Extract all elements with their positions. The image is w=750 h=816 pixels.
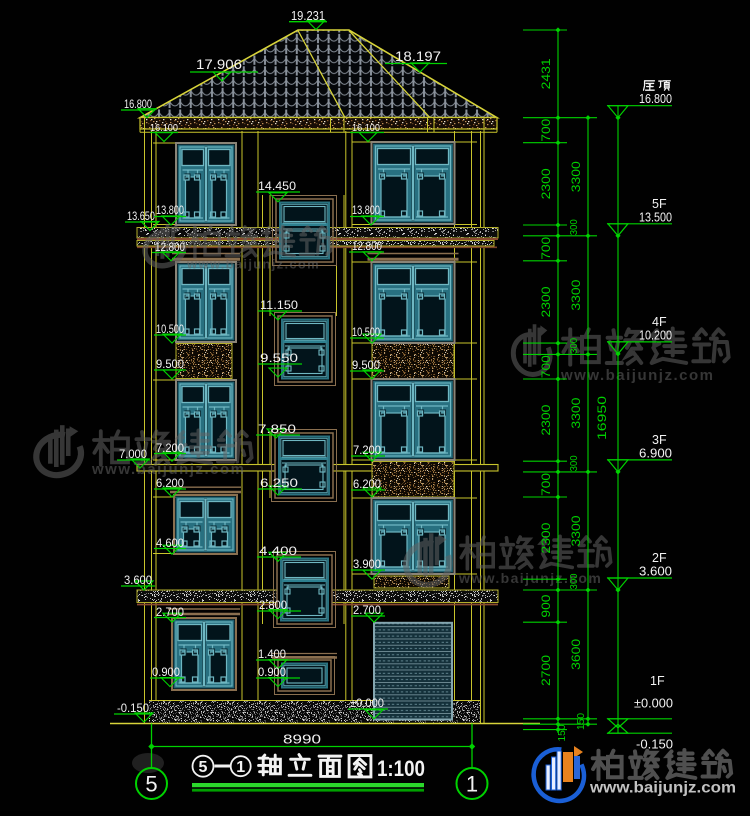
svg-text:-0.150: -0.150 [117, 703, 149, 715]
svg-text:16.100: 16.100 [352, 122, 380, 134]
svg-text:1: 1 [236, 759, 245, 776]
svg-text:13.800: 13.800 [352, 205, 380, 217]
svg-text:10.500: 10.500 [352, 327, 380, 339]
svg-text:5F: 5F [652, 197, 667, 211]
svg-text:3300: 3300 [571, 161, 583, 192]
svg-text:18.197: 18.197 [395, 48, 441, 64]
svg-text:8990: 8990 [283, 732, 321, 747]
svg-text:2F: 2F [652, 551, 667, 565]
svg-text:9.500: 9.500 [352, 360, 380, 372]
svg-text:11.150: 11.150 [260, 298, 298, 312]
svg-text:13.650: 13.650 [127, 211, 155, 223]
svg-text:7.850: 7.850 [258, 422, 297, 436]
svg-text:2431: 2431 [541, 58, 553, 89]
svg-text:2300: 2300 [541, 286, 553, 317]
svg-text:2.800: 2.800 [259, 600, 287, 612]
svg-text:4F: 4F [652, 315, 667, 329]
svg-text:300: 300 [568, 455, 580, 471]
svg-text:2300: 2300 [541, 405, 553, 436]
svg-text:10.200: 10.200 [639, 328, 672, 342]
svg-text:1: 1 [466, 772, 478, 797]
svg-text:2.700: 2.700 [156, 607, 184, 619]
svg-text:300: 300 [568, 338, 580, 354]
svg-text:150: 150 [575, 713, 587, 730]
svg-text:www.baijunjz.com: www.baijunjz.com [458, 570, 602, 586]
svg-text:2300: 2300 [541, 523, 553, 554]
svg-text:9.550: 9.550 [260, 351, 299, 365]
svg-text:5: 5 [145, 772, 157, 797]
svg-text:9.500: 9.500 [156, 359, 184, 371]
svg-text:17.906: 17.906 [196, 56, 242, 72]
svg-text:13.800: 13.800 [156, 205, 184, 217]
svg-text:700: 700 [541, 355, 553, 378]
svg-text:3F: 3F [652, 433, 667, 447]
svg-text:6.200: 6.200 [156, 478, 184, 490]
svg-text:13.500: 13.500 [639, 210, 672, 224]
svg-text:www.baijunjz.com: www.baijunjz.com [186, 256, 320, 271]
svg-text:7.000: 7.000 [119, 449, 147, 461]
svg-text:19.231: 19.231 [291, 9, 325, 23]
svg-text:3300: 3300 [571, 515, 583, 546]
svg-text:12.800: 12.800 [352, 241, 382, 253]
svg-text:10.500: 10.500 [156, 324, 184, 336]
svg-text:6.200: 6.200 [353, 479, 381, 491]
svg-text:4.600: 4.600 [156, 538, 184, 550]
svg-text:3300: 3300 [571, 280, 583, 311]
svg-text:7.200: 7.200 [353, 445, 381, 457]
svg-text:150: 150 [556, 724, 568, 741]
svg-text:6.250: 6.250 [260, 476, 299, 490]
svg-text:6.900: 6.900 [639, 446, 672, 460]
svg-text:3600: 3600 [571, 639, 583, 670]
svg-text:3300: 3300 [571, 398, 583, 429]
svg-text:900: 900 [541, 595, 553, 618]
svg-text:1:100: 1:100 [377, 756, 425, 781]
svg-text:16.800: 16.800 [639, 92, 672, 106]
svg-text:14.450: 14.450 [258, 179, 296, 193]
svg-text:www.baijunjz.com: www.baijunjz.com [91, 461, 245, 478]
svg-text:3.900: 3.900 [353, 559, 381, 571]
svg-text:www.baijunjz.com: www.baijunjz.com [589, 780, 736, 797]
svg-text:700: 700 [541, 237, 553, 260]
svg-text:2700: 2700 [541, 655, 553, 686]
svg-text:300: 300 [568, 219, 580, 235]
svg-text:±0.000: ±0.000 [350, 698, 384, 710]
svg-text:700: 700 [541, 473, 553, 496]
svg-text:-0.150: -0.150 [636, 738, 673, 752]
svg-text:5: 5 [199, 759, 208, 776]
svg-text:16.100: 16.100 [150, 122, 178, 134]
svg-text:2.700: 2.700 [353, 605, 381, 617]
svg-text:700: 700 [541, 119, 553, 142]
svg-text:3.600: 3.600 [639, 565, 672, 579]
svg-text:16.800: 16.800 [124, 99, 152, 111]
svg-text:1F: 1F [650, 674, 665, 688]
svg-text:16950: 16950 [595, 396, 609, 440]
svg-text:300: 300 [568, 573, 580, 589]
svg-text:www.baijunjz.com: www.baijunjz.com [560, 367, 714, 384]
svg-text:0.900: 0.900 [152, 667, 180, 679]
svg-text:2300: 2300 [541, 168, 553, 199]
svg-text:0.900: 0.900 [258, 667, 286, 679]
svg-text:±0.000: ±0.000 [634, 697, 673, 711]
svg-text:3.600: 3.600 [124, 575, 152, 587]
svg-text:7.200: 7.200 [156, 443, 184, 455]
svg-text:4.400: 4.400 [259, 544, 298, 558]
svg-text:1.400: 1.400 [258, 649, 286, 661]
svg-text:12.800: 12.800 [155, 242, 185, 254]
